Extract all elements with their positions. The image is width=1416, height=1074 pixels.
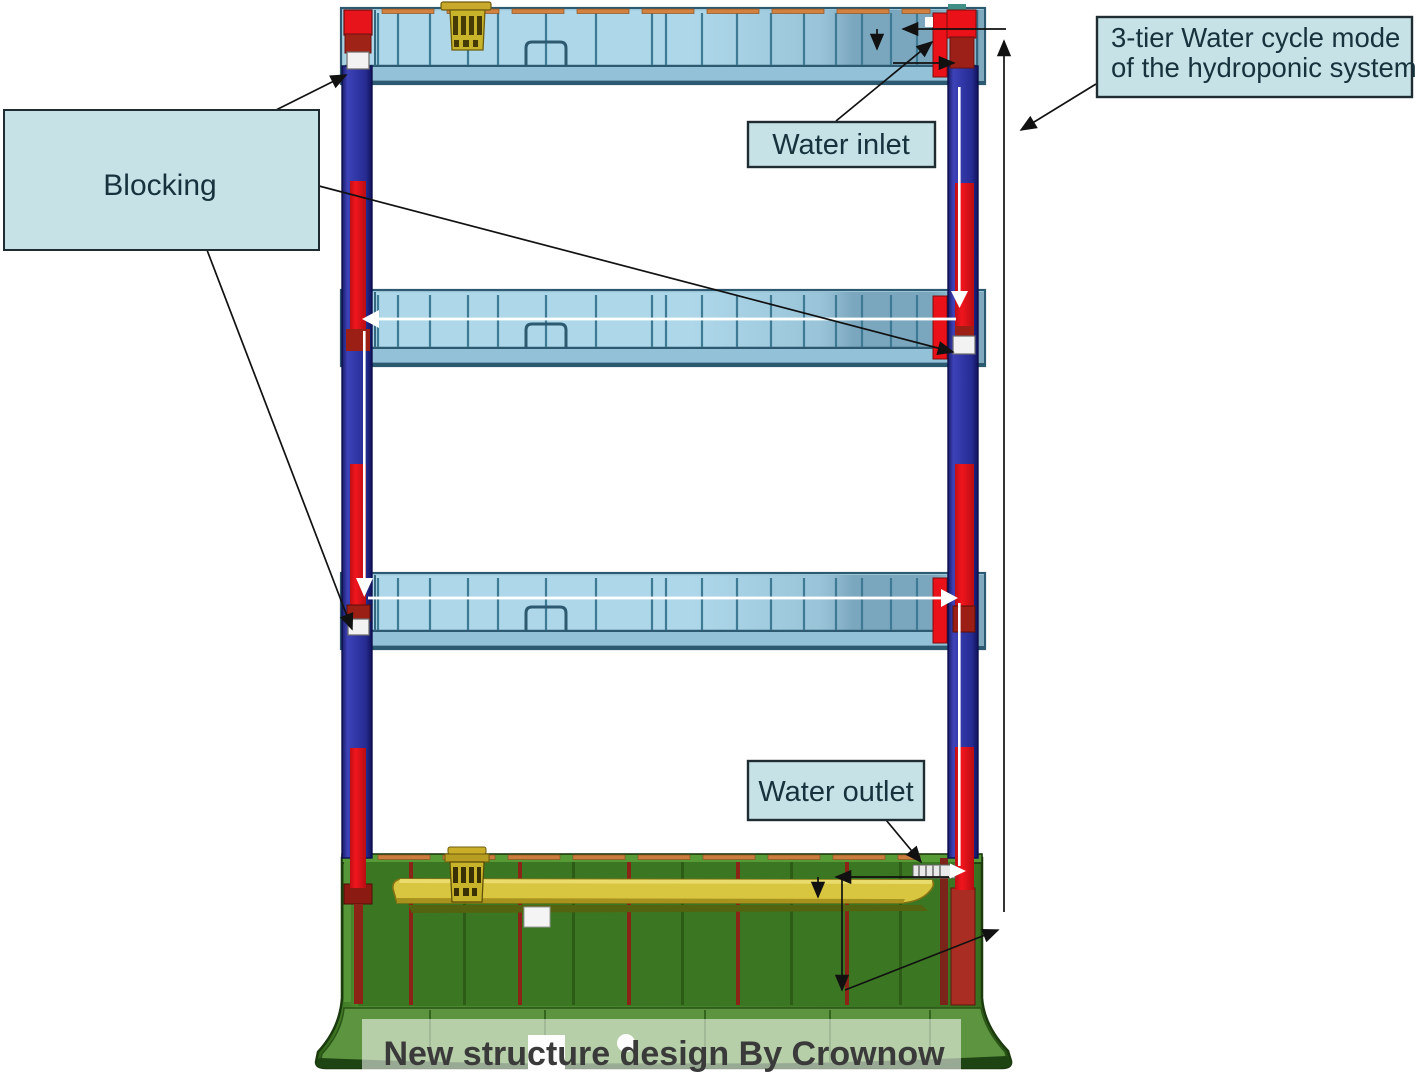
svg-text:of the hydroponic system: of the hydroponic system (1111, 52, 1416, 83)
svg-text:Blocking: Blocking (103, 169, 216, 202)
svg-text:New structure design By Crowno: New structure design By Crownow (383, 1035, 945, 1073)
svg-text:Water inlet: Water inlet (772, 129, 910, 161)
svg-text:3-tier Water cycle mode: 3-tier Water cycle mode (1111, 22, 1400, 53)
svg-text:Water outlet: Water outlet (758, 776, 913, 808)
